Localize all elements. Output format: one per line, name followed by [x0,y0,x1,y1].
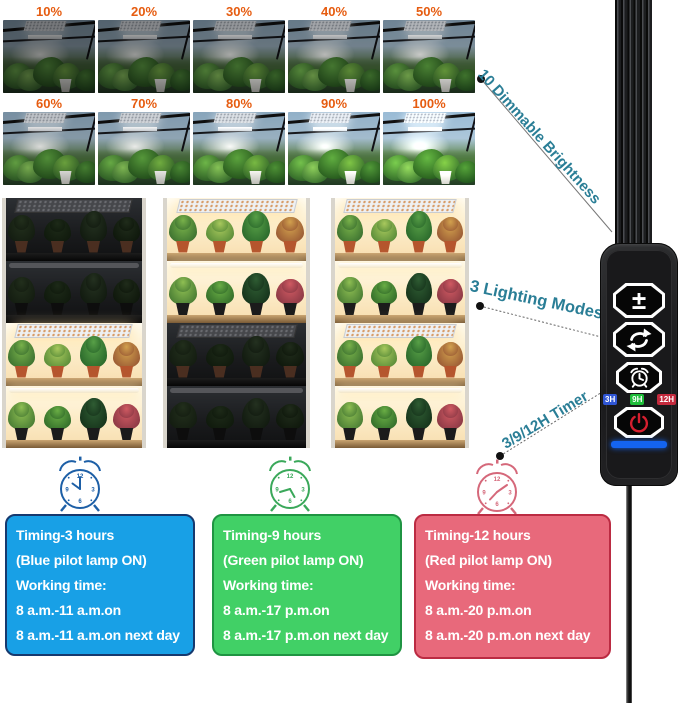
plant-foliage [411,273,426,291]
grow-light-bar [313,127,347,131]
led-panel [343,324,457,338]
shelf-plank [163,253,310,261]
timer-controller: ± [600,243,678,486]
light-tube [338,388,462,393]
light-tube [9,263,139,268]
brightness-level-label: 20% [131,4,157,20]
shelf-frame-side [2,198,6,448]
plant-foliage [265,69,285,91]
plant-pot [377,241,392,253]
timing-card-line: Working time: [425,573,600,598]
brightness-photo [288,20,380,93]
shelf-section [163,261,310,324]
plant-foliage [342,215,357,230]
plant-pot [119,366,135,378]
led-panel [176,324,297,338]
plant-foliage [14,340,30,355]
frame-post [181,20,190,60]
plant-foliage [170,69,190,91]
timing-card-title: Timing-3 hours [16,523,184,548]
plant-foliage [248,398,264,416]
plant-pot [14,303,30,315]
indicator-led-bar [611,441,667,448]
timing-card-line: 8 a.m.-17 p.m.on [223,598,391,623]
plant-foliage [360,69,380,91]
brightness-cell: 20% [98,4,190,93]
plant-foliage [377,281,392,294]
plant-pot [175,428,191,440]
led-panel [15,199,134,213]
brightness-level-label: 60% [36,96,62,112]
plant-pot [377,366,392,378]
grow-light-bar [408,35,442,39]
plant-pot [175,241,191,253]
plant-foliage [377,219,392,232]
plant-foliage [443,217,458,231]
brightness-photo [98,20,190,93]
shelf-photo-middle [163,198,310,448]
brightness-grid-row-1: 10%20%30%40%50% [3,4,475,93]
brightness-photo [193,20,285,93]
plant-pot [86,366,102,378]
frame-post [466,112,475,152]
grow-light-panel [214,21,257,31]
shelf-plank [331,378,469,386]
brightness-cell: 100% [383,96,475,185]
plant-pot [50,366,66,378]
cycle-icon [625,327,653,353]
timing-card-line: 8 a.m.-20 p.m.on next day [425,623,600,648]
shelf-plank [163,440,310,448]
plant-foliage [75,69,95,91]
brightness-level-label: 80% [226,96,252,112]
brightness-cell: 40% [288,4,380,93]
shelf-section [2,261,146,324]
shelf-section [2,386,146,449]
brightness-cell: 60% [3,96,95,185]
plant-foliage [86,398,102,416]
plant-pot [411,428,426,440]
brightness-level-label: 30% [226,4,252,20]
frame-post [86,20,95,60]
plant-foliage [455,69,475,91]
plant-pot [411,366,426,378]
alarm-clock-red: 12369 [470,459,524,517]
brightness-cell: 50% [383,4,475,93]
brightness-photo [383,20,475,93]
frame-post [466,20,475,60]
light-tube [170,263,302,268]
grow-light-panel [309,113,352,123]
frame-post [371,20,380,60]
brightness-cell: 10% [3,4,95,93]
power-button[interactable] [614,407,664,438]
timing-card-title: Timing-9 hours [223,523,391,548]
svg-text:12: 12 [287,474,294,480]
brightness-cell: 90% [288,96,380,185]
plant-pot [282,241,298,253]
shelf-frame-side [306,198,310,448]
plant-pot [50,428,66,440]
plant-foliage [282,342,298,356]
light-tube [170,388,302,393]
plant-foliage [411,398,426,416]
grow-light-panel [24,113,67,123]
timing-card-12h: Timing-12 hours (Red pilot lamp ON) Work… [414,514,611,659]
plant-pot [212,303,228,315]
timer-badge-row: 3H 9H 12H [603,394,676,405]
grow-light-bar [313,35,347,39]
plant-pot [248,428,264,440]
plant-foliage [212,344,228,357]
shelf-plank [2,253,146,261]
shelf-section [2,323,146,386]
plant-foliage [248,273,264,291]
brightness-level-label: 40% [321,4,347,20]
timing-card-line: (Blue pilot lamp ON) [16,548,184,573]
plant-pot [212,366,228,378]
plant-pot [119,428,135,440]
shelf-plank [2,378,146,386]
light-tube [9,388,139,393]
shelf-plank [163,315,310,323]
plant-pot [175,303,191,315]
grow-light-panel [214,113,257,123]
plant-pot [248,303,264,315]
annotation-timer: 3/9/12H Timer [499,388,591,453]
grow-light-bar [218,35,252,39]
brightness-photo [193,112,285,185]
shelf-plank [2,440,146,448]
brightness-level-label: 50% [416,4,442,20]
shelf-section [163,323,310,386]
plant-pot [50,241,66,253]
plant-pot [411,241,426,253]
plant-pot [282,366,298,378]
frame-post [276,112,285,152]
timer-button[interactable] [616,362,662,393]
plant-foliage [14,215,30,230]
brightness-level-label: 100% [412,96,445,112]
shelf-plank [331,253,469,261]
timing-card-line: Working time: [223,573,391,598]
shelf-section [331,386,469,449]
plant-foliage [175,340,191,355]
shelf-plank [331,440,469,448]
timing-card-line: 8 a.m.-11 a.m.on [16,598,184,623]
plant-pot [14,366,30,378]
grow-light-bar [123,127,157,131]
plant-foliage [455,161,475,183]
plus-minus-icon: ± [632,287,646,313]
grow-light-bar [408,127,442,131]
led-panel [176,199,297,213]
badge-12h: 12H [657,394,676,405]
plant-foliage [377,406,392,419]
plant-foliage [212,281,228,294]
brightness-level-label: 70% [131,96,157,112]
plant-pot [342,428,357,440]
mode-button[interactable] [613,322,665,357]
plant-pot [14,428,30,440]
plant-pot [443,303,458,315]
timing-card-line: 8 a.m.-20 p.m.on [425,598,600,623]
grow-light-panel [24,21,67,31]
led-panel [15,324,134,338]
plant-foliage [265,161,285,183]
plant-foliage [75,161,95,183]
plant-pot [212,428,228,440]
alarm-clock-green: 12369 [263,456,317,514]
plant-pot [248,241,264,253]
plant-foliage [282,217,298,231]
brightness-photo [3,112,95,185]
shelf-section [331,323,469,386]
timing-card-line: Working time: [16,573,184,598]
timing-card-line: (Red pilot lamp ON) [425,548,600,573]
shelf-section [331,261,469,324]
alarm-clock-blue: 12369 [53,456,107,514]
plant-foliage [175,215,191,230]
shelf-section [163,198,310,261]
plant-foliage [212,219,228,232]
plant-pot [248,366,264,378]
grow-light-panel [309,21,352,31]
brightness-photo [288,112,380,185]
brightness-photo [3,20,95,93]
plant-foliage [50,344,66,357]
power-icon [627,411,651,435]
frame-post [181,112,190,152]
light-tube [338,263,462,268]
plant-pot [175,366,191,378]
plant-pot [86,303,102,315]
brightness-level-label: 90% [321,96,347,112]
shelf-plank [163,378,310,386]
grow-light-panel [404,21,447,31]
shelf-frame-side [465,198,469,448]
annotation-lighting-modes: 3 Lighting Modes [468,277,605,324]
badge-3h: 3H [603,394,617,405]
annotation-dimmable-brightness: 10 Dimmable Brightness [474,66,604,207]
plant-pot [282,428,298,440]
grow-light-bar [123,35,157,39]
plant-foliage [86,273,102,291]
brightness-grid-row-2: 60%70%80%90%100% [3,96,475,185]
shelf-plank [2,315,146,323]
shelf-photo-left [2,198,146,448]
grow-light-panel [404,113,447,123]
grow-light-bar [28,127,62,131]
grow-light-infographic: 10%20%30%40%50% 60%70%80%90%100% 10 Dimm… [0,0,679,703]
timing-card-line: 8 a.m.-17 p.m.on next day [223,623,391,648]
brightness-photo [98,112,190,185]
plant-pot [212,241,228,253]
led-panel [343,199,457,213]
shelf-plank [331,315,469,323]
timing-card-line: (Green pilot lamp ON) [223,548,391,573]
grow-light-bar [28,35,62,39]
plant-pot [119,303,135,315]
brightness-photo [383,112,475,185]
callout-dot [476,302,484,310]
plant-pot [342,366,357,378]
frame-post [276,20,285,60]
plant-pot [443,366,458,378]
plant-foliage [212,406,228,419]
plant-foliage [360,161,380,183]
power-cord [626,484,632,703]
plant-pot [86,428,102,440]
brightness-cell: 80% [193,96,285,185]
shelf-frame-side [331,198,335,448]
plant-foliage [119,342,135,356]
plant-foliage [119,217,135,231]
svg-text:12: 12 [494,477,501,483]
plant-pot [342,303,357,315]
timing-card-9h: Timing-9 hours (Green pilot lamp ON) Wor… [212,514,402,656]
plant-pot [411,303,426,315]
frame-post [371,112,380,152]
shelf-frame-side [142,198,146,448]
shelf-frame-side [163,198,167,448]
grow-light-panel [119,113,162,123]
plant-pot [443,428,458,440]
brightness-button[interactable]: ± [613,283,665,318]
plant-foliage [443,342,458,356]
brightness-level-label: 10% [36,4,62,20]
plant-pot [86,241,102,253]
plant-foliage [50,219,66,232]
timing-card-3h: Timing-3 hours (Blue pilot lamp ON) Work… [5,514,195,656]
grow-light-bar [218,127,252,131]
plant-pot [443,241,458,253]
plant-pot [377,428,392,440]
shelf-section [2,198,146,261]
plant-pot [377,303,392,315]
plant-pot [119,241,135,253]
plant-pot [50,303,66,315]
brightness-cell: 30% [193,4,285,93]
plant-pot [14,241,30,253]
timing-card-title: Timing-12 hours [425,523,600,548]
plant-foliage [170,161,190,183]
grow-light-panel [119,21,162,31]
brightness-cell: 70% [98,96,190,185]
alarm-icon [628,366,651,389]
plant-foliage [377,344,392,357]
plant-foliage [342,340,357,355]
shelf-photo-right [331,198,469,448]
plant-pot [282,303,298,315]
frame-post [86,112,95,152]
timing-card-line: 8 a.m.-11 a.m.on next day [16,623,184,648]
power-cable-ribbon [615,0,652,245]
shelf-section [163,386,310,449]
shelf-section [331,198,469,261]
badge-9h: 9H [630,394,644,405]
plant-pot [342,241,357,253]
